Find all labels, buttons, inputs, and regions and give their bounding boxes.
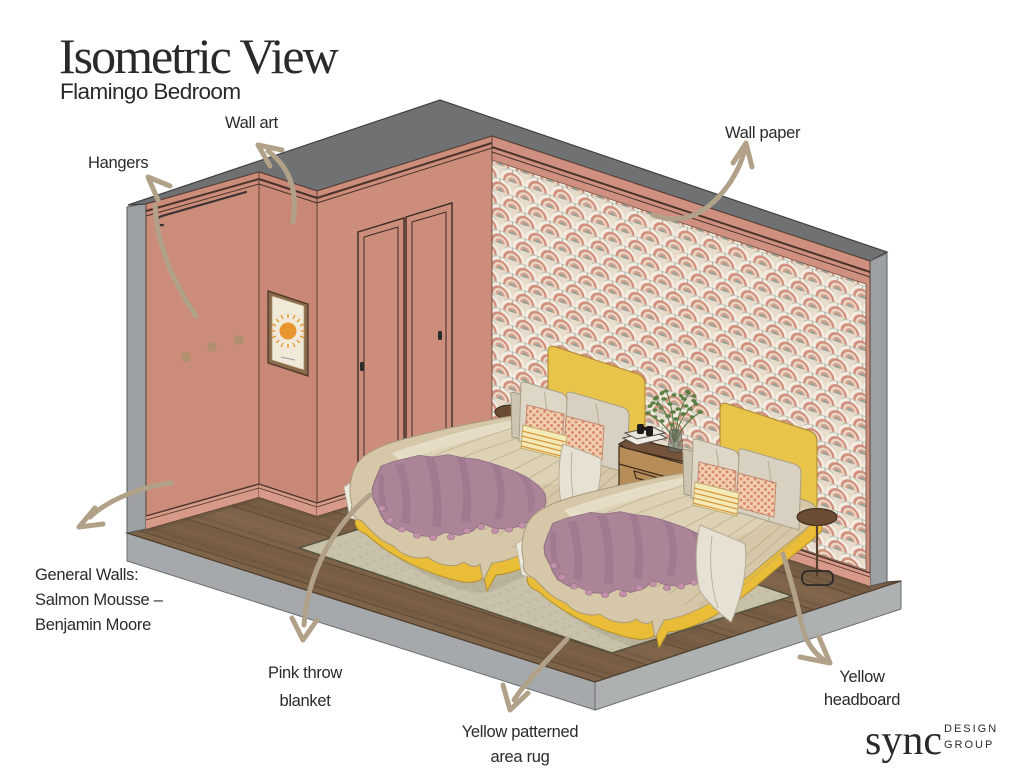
svg-text:Wall art: Wall art (225, 114, 279, 132)
svg-text:Flamingo Bedroom: Flamingo Bedroom (60, 79, 241, 104)
svg-text:Hangers: Hangers (88, 154, 148, 172)
svg-text:sync: sync (865, 718, 942, 764)
svg-text:area rug: area rug (490, 748, 549, 766)
svg-text:Yellow patterned: Yellow patterned (462, 723, 579, 741)
svg-text:Yellow: Yellow (839, 668, 885, 686)
svg-text:blanket: blanket (279, 692, 331, 710)
svg-text:Pink throw: Pink throw (268, 664, 342, 682)
svg-text:headboard: headboard (824, 691, 900, 709)
svg-text:Salmon Mousse –: Salmon Mousse – (35, 591, 164, 609)
svg-text:GROUP: GROUP (944, 739, 994, 751)
svg-text:General Walls:: General Walls: (35, 566, 138, 584)
svg-text:Benjamin Moore: Benjamin Moore (35, 616, 151, 634)
svg-text:DESIGN: DESIGN (944, 723, 998, 735)
svg-text:Wall paper: Wall paper (725, 124, 801, 142)
svg-text:Isometric View: Isometric View (59, 28, 339, 84)
